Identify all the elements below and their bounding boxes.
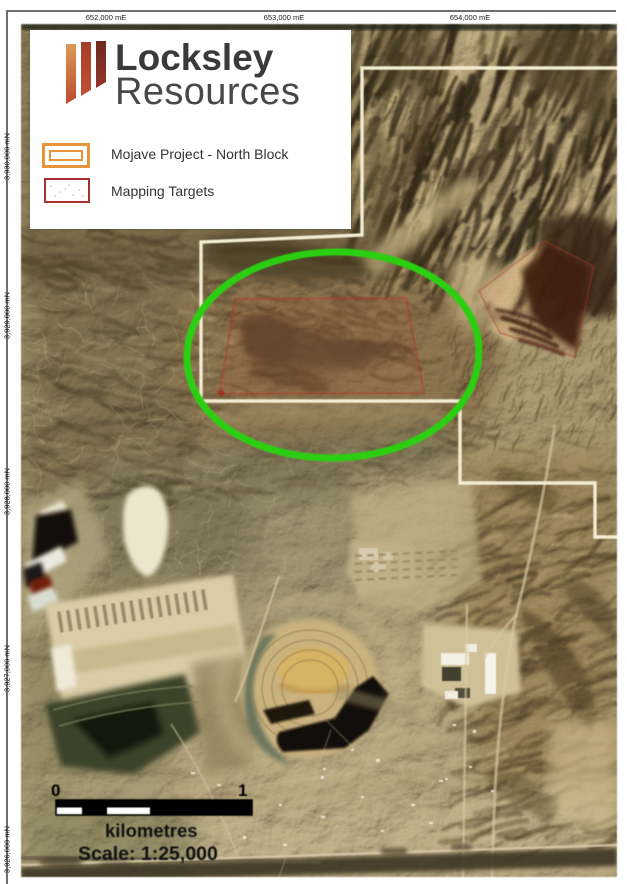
svg-text:kilometres: kilometres xyxy=(105,820,198,841)
svg-text:0: 0 xyxy=(51,781,60,800)
svg-text:Scale: 1:25,000: Scale: 1:25,000 xyxy=(78,843,218,865)
svg-text:1: 1 xyxy=(238,781,247,800)
